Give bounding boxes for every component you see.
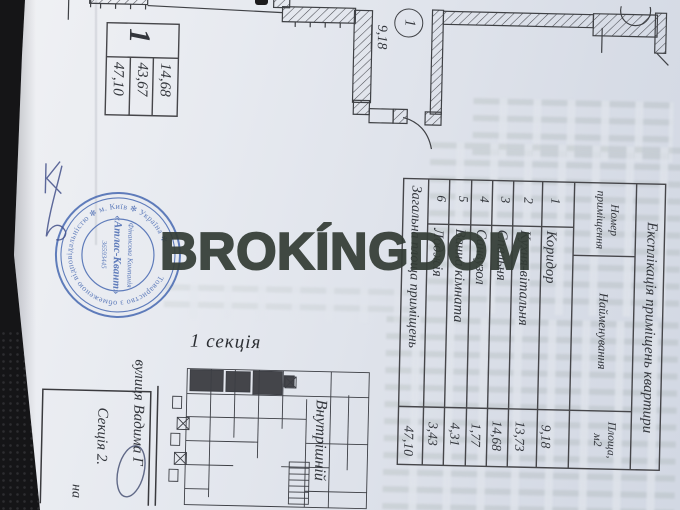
col-header-number: Номер приміщення: [592, 186, 621, 255]
total-value: 47,10: [401, 425, 415, 456]
area-value-total: 47,10: [110, 62, 126, 96]
brokingdom-watermark: BROKÍNGDOM: [160, 222, 532, 282]
stamp-code: 36593445: [100, 240, 109, 270]
row-num: 5: [457, 196, 470, 203]
room-area: 9,18: [374, 25, 389, 50]
inner-courtyard-label: Внутрішній: [311, 399, 329, 481]
area-value-living: 14,68: [157, 63, 173, 97]
area-value-mid: 43,67: [134, 62, 150, 96]
row-area: 14,68: [490, 420, 504, 451]
row-area: 13,73: [513, 421, 527, 452]
row-num: 4: [478, 196, 491, 203]
photo-of-floorplan-document: Товариство з обмеженою відповідальністю …: [0, 0, 680, 510]
pen-signature: [44, 161, 67, 240]
row-num: 1: [549, 198, 562, 205]
row-name: Коридор: [542, 231, 558, 284]
paper-top-notch: [255, 0, 268, 5]
section1-label: 1 секція: [190, 331, 262, 355]
room-number: 1: [400, 19, 417, 27]
titleblock-na: на: [68, 484, 82, 498]
row-area: 1,77: [469, 423, 483, 447]
stamp-company-name: «Атлас-Квант»: [110, 215, 124, 294]
street-label: вулиця Вадима Г: [129, 359, 146, 465]
row-area: 3,43: [426, 422, 440, 446]
col-header-area: Площа, м2: [589, 413, 617, 468]
apartment-number: 1: [124, 28, 154, 44]
titleblock-section2: Секція 2.: [93, 407, 109, 465]
row-num: 6: [435, 195, 448, 202]
mini-section-plan: [168, 368, 369, 508]
row-num: 2: [522, 197, 535, 204]
col-header-name: Найменування: [595, 293, 609, 370]
stamp-company-type: Фінансова Компанія: [125, 223, 135, 288]
row-num: 3: [499, 197, 512, 204]
row-area: 9,18: [539, 425, 553, 449]
row-area: 4,31: [448, 422, 462, 446]
